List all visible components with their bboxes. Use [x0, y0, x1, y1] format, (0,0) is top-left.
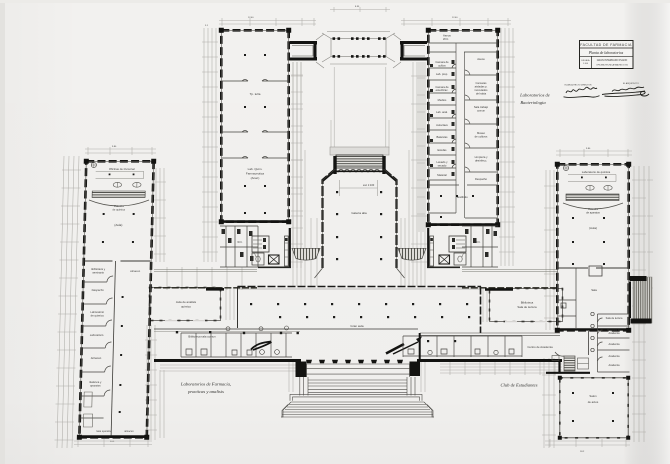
svg-text:GRAN INTERNADO PLANO: GRAN INTERNADO PLANO: [597, 59, 628, 62]
svg-text:Balanzas: Balanzas: [436, 135, 448, 139]
svg-text:Despacho: Despacho: [475, 177, 488, 181]
svg-text:FACULTAD DE FARMACIA: FACULTAD DE FARMACIA: [580, 43, 632, 47]
svg-text:EL ARQUITECTO DIRECTOR: EL ARQUITECTO DIRECTOR: [565, 84, 592, 87]
svg-text:Lab. anal.: Lab. anal.: [436, 110, 448, 114]
svg-text:Laboratorio: Laboratorio: [90, 310, 104, 314]
svg-text:del rabia: del rabia: [476, 92, 487, 96]
svg-text:Estufas: Estufas: [438, 148, 448, 152]
svg-text:Centro de Academia: Centro de Academia: [527, 345, 553, 349]
svg-text:ESCALA: ESCALA: [582, 59, 591, 62]
svg-text:Academia: Academia: [608, 343, 620, 346]
svg-text:Limpieza y: Limpieza y: [475, 155, 489, 159]
svg-text:Vestibulo: Vestibulo: [456, 195, 468, 199]
svg-text:Camara de: Camara de: [435, 60, 449, 64]
svg-text:12.40: 12.40: [452, 17, 458, 19]
svg-text:quimico: quimico: [181, 305, 191, 309]
svg-text:Farmaceutica: Farmaceutica: [246, 172, 265, 176]
svg-text:Medios: Medios: [438, 98, 447, 102]
svg-text:Catedra: Catedra: [588, 207, 598, 211]
svg-text:Oficinas de Personal: Oficinas de Personal: [109, 167, 135, 171]
svg-text:Almacen: Almacen: [91, 356, 102, 360]
svg-text:Planta de laboratorios: Planta de laboratorios: [588, 51, 624, 55]
svg-text:Biblioteca sala comun: Biblioteca sala comun: [188, 335, 216, 339]
svg-text:Laboratorio de quimica: Laboratorio de quimica: [582, 170, 611, 174]
svg-text:de aparatos: de aparatos: [586, 211, 600, 215]
svg-text:Lavado y: Lavado y: [437, 160, 449, 164]
svg-text:Laboratorio: Laboratorio: [90, 333, 104, 337]
svg-text:Club de Estudiantes: Club de Estudiantes: [500, 383, 537, 388]
svg-text:Aula de analisis: Aula de analisis: [176, 300, 197, 304]
svg-text:Laboratorios de: Laboratorios de: [519, 93, 550, 98]
svg-text:(Anal.): (Anal.): [251, 176, 260, 180]
svg-text:Lab. prep.: Lab. prep.: [436, 72, 448, 76]
svg-text:Almacen: Almacen: [130, 269, 141, 273]
svg-text:seminario: seminario: [92, 271, 104, 275]
svg-text:Gran aula: Gran aula: [350, 324, 364, 328]
svg-text:esterilizac.: esterilizac.: [436, 88, 449, 92]
svg-text:Academia: Academia: [608, 364, 620, 367]
svg-text:(Aula): (Aula): [589, 226, 597, 230]
svg-text:Camaras: Camaras: [476, 81, 488, 85]
svg-text:W.C.: W.C.: [475, 241, 481, 244]
svg-text:Museo: Museo: [477, 131, 486, 135]
svg-text:W.C.: W.C.: [443, 37, 449, 41]
svg-text:Biblioteca y: Biblioteca y: [91, 267, 105, 271]
svg-text:Sala aparatos: Sala aparatos: [96, 430, 112, 433]
svg-text:practicas y analisis: practicas y analisis: [187, 389, 224, 394]
svg-text:Balanza y: Balanza y: [89, 380, 102, 384]
svg-text:de cultivos: de cultivos: [475, 135, 488, 139]
svg-text:W.C.: W.C.: [237, 241, 243, 244]
svg-text:Despacho: Despacho: [92, 288, 105, 292]
svg-text:1:100: 1:100: [583, 63, 589, 65]
svg-text:Aseos: Aseos: [477, 57, 485, 61]
svg-text:Tp. leña: Tp. leña: [250, 92, 261, 96]
svg-text:cultivo: cultivo: [438, 64, 446, 68]
svg-text:inoculados: inoculados: [475, 88, 489, 92]
svg-text:de quimica: de quimica: [91, 314, 105, 318]
svg-text:almacen: almacen: [124, 430, 134, 433]
svg-text:comun: comun: [477, 110, 486, 113]
svg-text:de quimica: de quimica: [112, 208, 125, 212]
svg-text:secado: secado: [438, 164, 447, 168]
svg-text:(Aula): (Aula): [114, 223, 122, 227]
svg-text:desinfecc.: desinfecc.: [475, 159, 487, 163]
svg-text:Academia: Academia: [608, 355, 620, 358]
svg-text:Autoclave: Autoclave: [436, 123, 448, 127]
svg-text:Bacteriologia: Bacteriologia: [520, 100, 546, 105]
svg-text:aisladas p.: aisladas p.: [475, 85, 488, 89]
svg-text:Biblioteca: Biblioteca: [521, 301, 534, 305]
svg-text:Lab. Quim.: Lab. Quim.: [248, 167, 263, 171]
svg-text:Salon: Salon: [589, 394, 597, 398]
svg-text:Catedra: Catedra: [114, 204, 124, 208]
svg-text:Sala: Sala: [591, 288, 597, 292]
svg-text:de actos: de actos: [588, 400, 599, 404]
svg-text:esc 1:100: esc 1:100: [363, 183, 375, 187]
svg-text:Academia: Academia: [608, 332, 620, 335]
svg-text:Sala de lectura: Sala de lectura: [606, 317, 623, 320]
svg-text:Material: Material: [437, 173, 447, 177]
svg-text:EL ARQUITECTO: EL ARQUITECTO: [623, 82, 639, 85]
svg-text:Galeria alta: Galeria alta: [351, 211, 367, 215]
svg-text:aparatos: aparatos: [90, 384, 101, 388]
svg-text:Sala trabajo: Sala trabajo: [474, 105, 489, 109]
svg-text:Sala de lectura: Sala de lectura: [517, 305, 537, 309]
svg-text:12.40: 12.40: [248, 17, 254, 19]
svg-text:OFICINA TECNICA MADRID 1931: OFICINA TECNICA MADRID 1931: [596, 64, 629, 67]
